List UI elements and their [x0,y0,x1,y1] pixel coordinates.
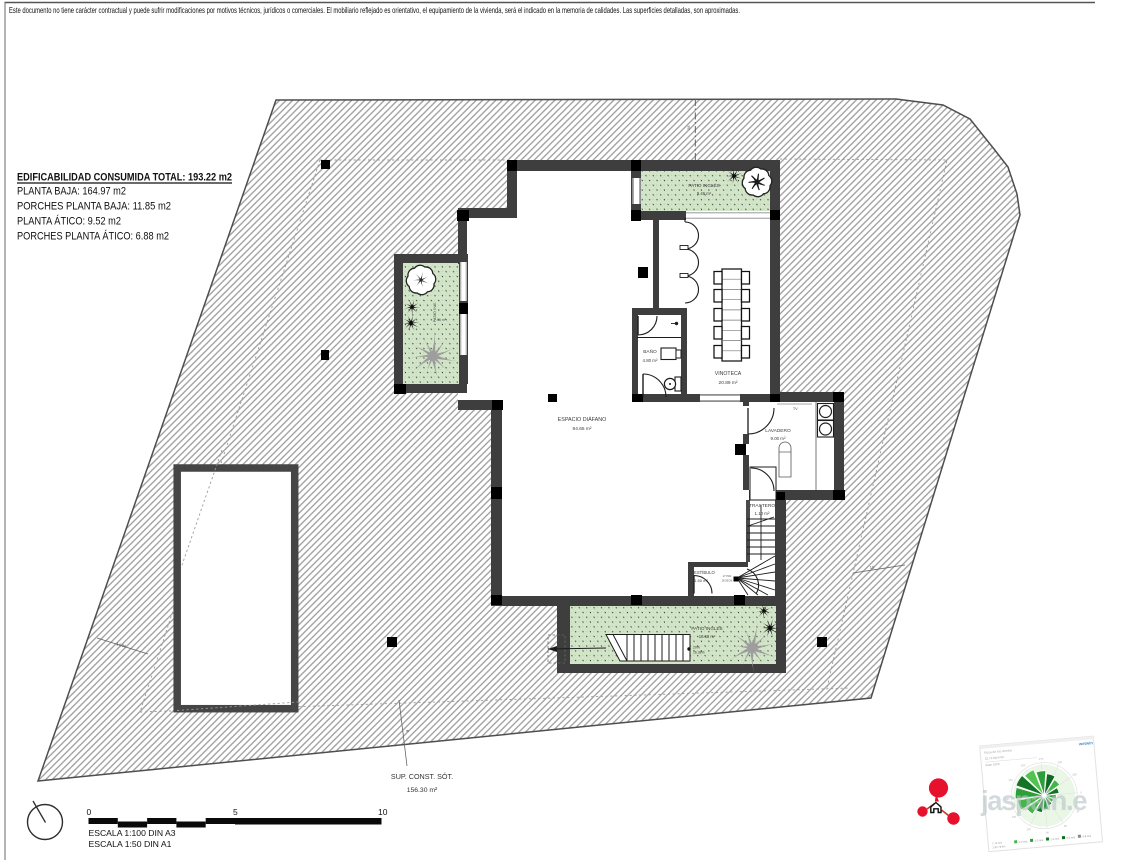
svg-text:ESPACIO DIÁFANO: ESPACIO DIÁFANO [558,416,607,423]
svg-text:1.50 m²: 1.50 m² [694,578,708,583]
svg-text:VINOTECA: VINOTECA [715,371,742,377]
svg-text:ESCALA 1:50 DIN A1: ESCALA 1:50 DIN A1 [89,840,172,849]
svg-text:ESCALA 1:100 DIN A3: ESCALA 1:100 DIN A3 [89,829,176,838]
svg-text:jaspain.e: jaspain.e [980,785,1087,816]
svg-text:3-5 m/s: 3-5 m/s [1066,835,1076,840]
svg-text:0: 0 [87,807,92,817]
svg-text:SUP. CONST. SÓT.: SUP. CONST. SÓT. [391,772,453,781]
svg-text:4.80 m²: 4.80 m² [643,358,658,363]
svg-text:18.68 m²: 18.68 m² [699,634,716,639]
svg-text:17 PAS: 17 PAS [723,574,732,578]
svg-text:TRASTERO: TRASTERO [749,503,775,509]
svg-text:94.65 m²: 94.65 m² [573,426,592,432]
svg-text:20.89 m²: 20.89 m² [719,380,738,386]
svg-text:BAÑO: BAÑO [643,348,657,355]
svg-text:PORCHES PLANTA ÁTICO: 6.88 m2: PORCHES PLANTA ÁTICO: 6.88 m2 [17,230,169,243]
svg-text:9.46 m²: 9.46 m² [697,191,712,196]
svg-text:9.00 m²: 9.00 m² [771,436,786,441]
svg-text:1.10 m²: 1.10 m² [755,511,770,516]
svg-text:18.92CM: 18.92CM [722,579,733,583]
svg-text:1-3 m/s: 1-3 m/s [1034,838,1044,843]
svg-text:VESTÍBULO: VESTÍBULO [691,570,715,575]
svg-text:PORCHES PLANTA BAJA: 11.85 m2: PORCHES PLANTA BAJA: 11.85 m2 [17,201,171,213]
svg-text:0-2 m/s: 0-2 m/s [1019,839,1029,844]
svg-text:156.30 m²: 156.30 m² [407,787,438,794]
svg-text:16.38%: 16.38% [693,651,705,655]
svg-text:10: 10 [378,807,388,817]
svg-text:PLANTA ÁTICO: 9.52 m2: PLANTA ÁTICO: 9.52 m2 [17,215,121,228]
svg-text:20%: 20% [693,646,700,650]
svg-text:28: 28 [686,125,691,130]
svg-text:Este documento no tiene caráct: Este documento no tiene carácter contrac… [9,5,740,15]
svg-text:2-4 m/s: 2-4 m/s [1050,836,1060,841]
svg-text:4-6 m/s: 4-6 m/s [1082,834,1092,839]
svg-text:EDIFICABILIDAD CONSUMIDA TOTAL: EDIFICABILIDAD CONSUMIDA TOTAL: 193.22 m… [17,172,232,184]
svg-text:LAVADERO: LAVADERO [765,428,791,434]
svg-text:5: 5 [233,807,238,817]
svg-text:PATIO INGLÉS: PATIO INGLÉS [688,182,719,188]
svg-text:TV: TV [793,407,798,411]
svg-text:7.96 m²: 7.96 m² [434,318,447,322]
svg-text:PATIO INGLÉS: PATIO INGLÉS [691,625,722,631]
svg-text:PLANTA BAJA: 164.97 m2: PLANTA BAJA: 164.97 m2 [17,186,126,198]
